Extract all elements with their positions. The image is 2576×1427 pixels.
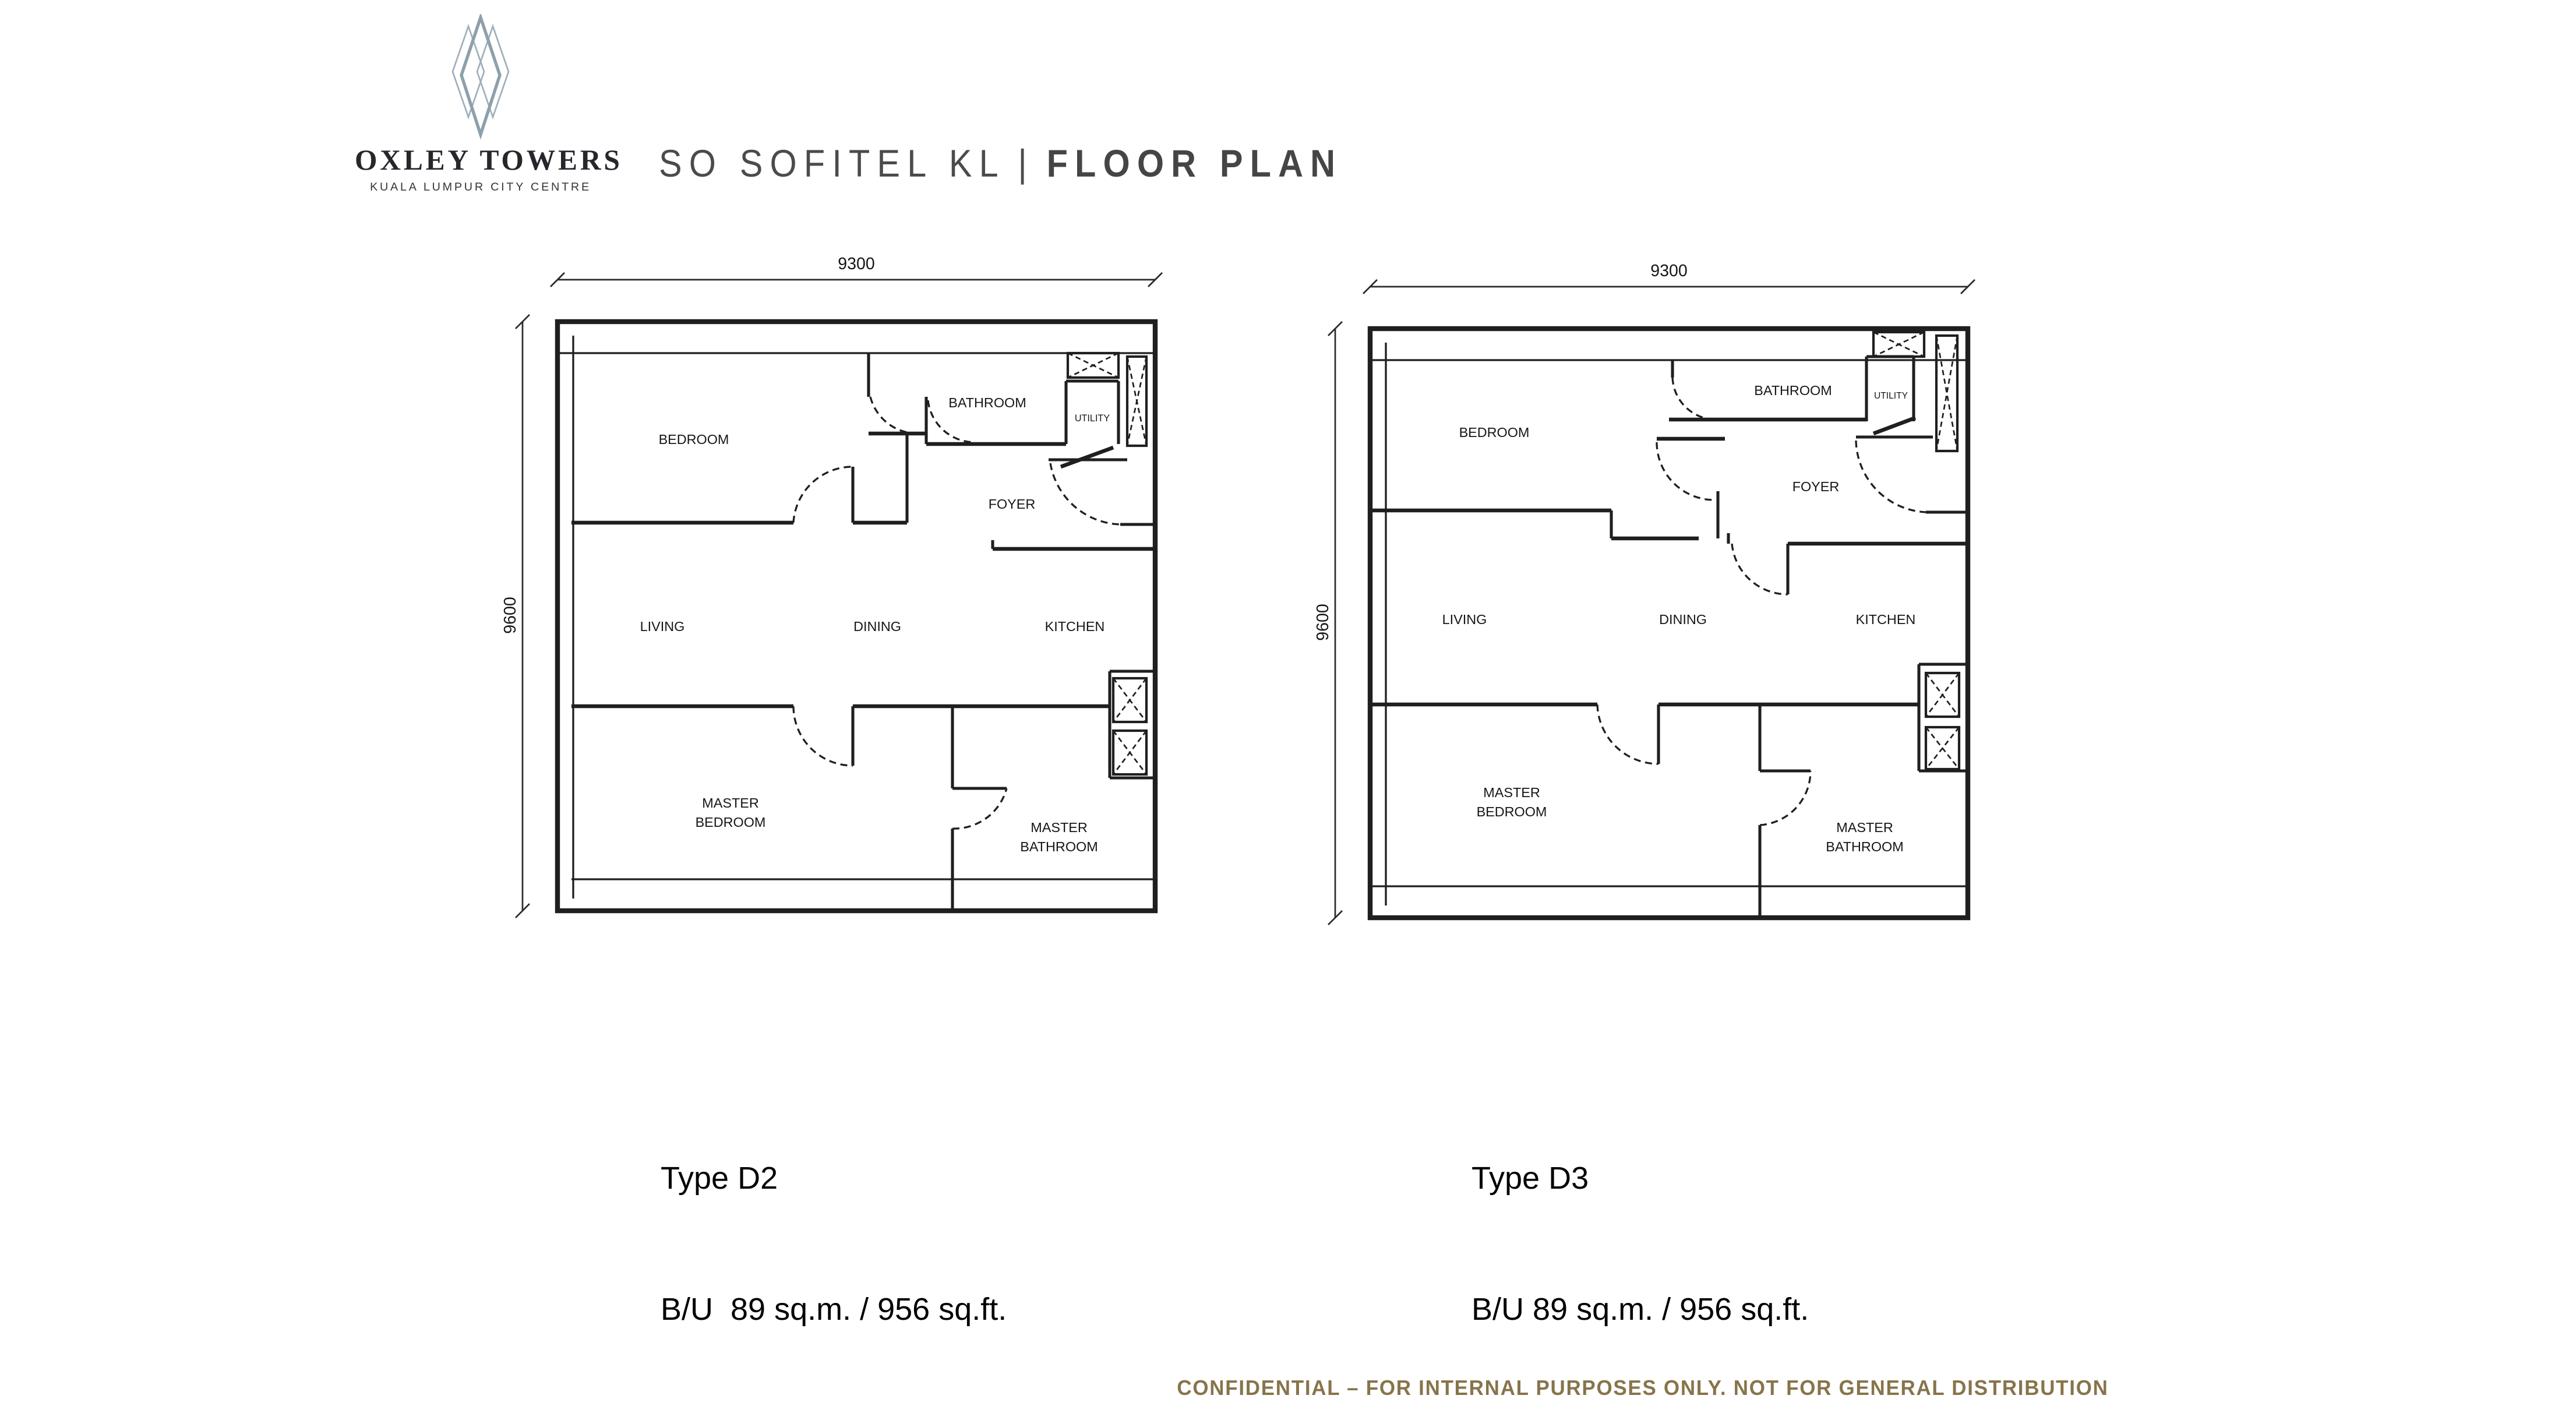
elevator-box-icon — [1113, 731, 1146, 774]
logo-tagline-text: KUALA LUMPUR CITY CENTRE — [355, 182, 606, 194]
confidential-footer: CONFIDENTIAL – FOR INTERNAL PURPOSES ONL… — [1117, 1376, 2168, 1400]
room-label-bathroom: BATHROOM — [1754, 383, 1832, 398]
oxley-towers-logo: OXLEY TOWERS KUALA LUMPUR CITY CENTRE — [355, 10, 606, 199]
door-arcs — [1597, 378, 1926, 825]
plan-d3-caption: Type D3 B/U 89 sq.m. / 956 sq.ft. — [1472, 1070, 1809, 1419]
room-label-dining: DINING — [1659, 612, 1707, 627]
room-label-master-bedroom: MASTER — [1483, 785, 1540, 800]
room-label-master-bathroom: BATHROOM — [1020, 839, 1098, 854]
logo-brand-text: OXLEY TOWERS — [355, 143, 606, 178]
room-label-master-bathroom: MASTER — [1836, 820, 1893, 835]
dim-height-label: 9600 — [1314, 604, 1332, 640]
room-label-master-bedroom: BEDROOM — [696, 815, 766, 830]
plan-d2-type-label: Type D2 — [661, 1157, 1007, 1201]
room-label-foyer: FOYER — [989, 496, 1036, 512]
plan-d3-area-label: B/U 89 sq.m. / 956 sq.ft. — [1472, 1288, 1809, 1332]
elevator-box-icon — [1926, 673, 1959, 717]
dim-width-label: 9300 — [838, 255, 874, 273]
title-section: FLOOR PLAN — [1047, 142, 1343, 185]
shaft-icon — [1936, 336, 1957, 451]
room-label-foyer: FOYER — [1792, 479, 1840, 494]
room-label-dining: DINING — [853, 619, 901, 634]
floor-plan-d2: 9300 9600 — [498, 234, 1169, 930]
elevator-box-icon — [1926, 727, 1959, 769]
heavy-walls — [1372, 418, 1968, 704]
partition-walls — [1611, 357, 1968, 918]
page-title: SO SOFITEL KL|FLOOR PLAN — [659, 142, 1342, 187]
plan-d3-type-label: Type D3 — [1472, 1157, 1809, 1201]
room-label-utility: UTILITY — [1075, 413, 1110, 424]
room-label-master-bathroom: BATHROOM — [1826, 839, 1903, 854]
room-label-bathroom: BATHROOM — [948, 395, 1026, 410]
heavy-walls — [571, 434, 1155, 706]
duct-box-icon — [1068, 353, 1118, 378]
shaft-icon — [1127, 357, 1146, 446]
room-label-kitchen: KITCHEN — [1045, 619, 1105, 634]
logo-diamond-icon — [442, 14, 519, 140]
room-label-master-bathroom: MASTER — [1031, 820, 1087, 835]
floor-plan-d3: 9300 9600 — [1311, 241, 1982, 937]
room-label-utility: UTILITY — [1874, 391, 1908, 401]
elevator-box-icon — [1113, 678, 1146, 722]
room-labels: BEDROOM BATHROOM UTILITY FOYER LIVING DI… — [640, 395, 1110, 854]
plan-d2-caption: Type D2 B/U 89 sq.m. / 956 sq.ft. — [661, 1070, 1007, 1419]
floor-plan-page: OXLEY TOWERS KUALA LUMPUR CITY CENTRE SO… — [0, 0, 2576, 1427]
title-separator: | — [1005, 142, 1047, 185]
room-label-kitchen: KITCHEN — [1856, 612, 1916, 627]
room-label-living: LIVING — [1442, 612, 1487, 627]
dim-height-label: 9600 — [501, 597, 520, 633]
plan-d2-area-label: B/U 89 sq.m. / 956 sq.ft. — [661, 1288, 1007, 1332]
room-label-master-bedroom: MASTER — [702, 795, 758, 811]
duct-box-icon — [1873, 332, 1924, 357]
room-label-living: LIVING — [640, 619, 685, 634]
room-labels: BEDROOM BATHROOM UTILITY FOYER LIVING DI… — [1442, 383, 1916, 854]
title-project: SO SOFITEL KL — [659, 142, 1005, 185]
room-label-bedroom: BEDROOM — [659, 432, 729, 447]
room-label-bedroom: BEDROOM — [1459, 425, 1530, 440]
dim-width-label: 9300 — [1650, 262, 1687, 280]
room-label-master-bedroom: BEDROOM — [1477, 804, 1547, 819]
